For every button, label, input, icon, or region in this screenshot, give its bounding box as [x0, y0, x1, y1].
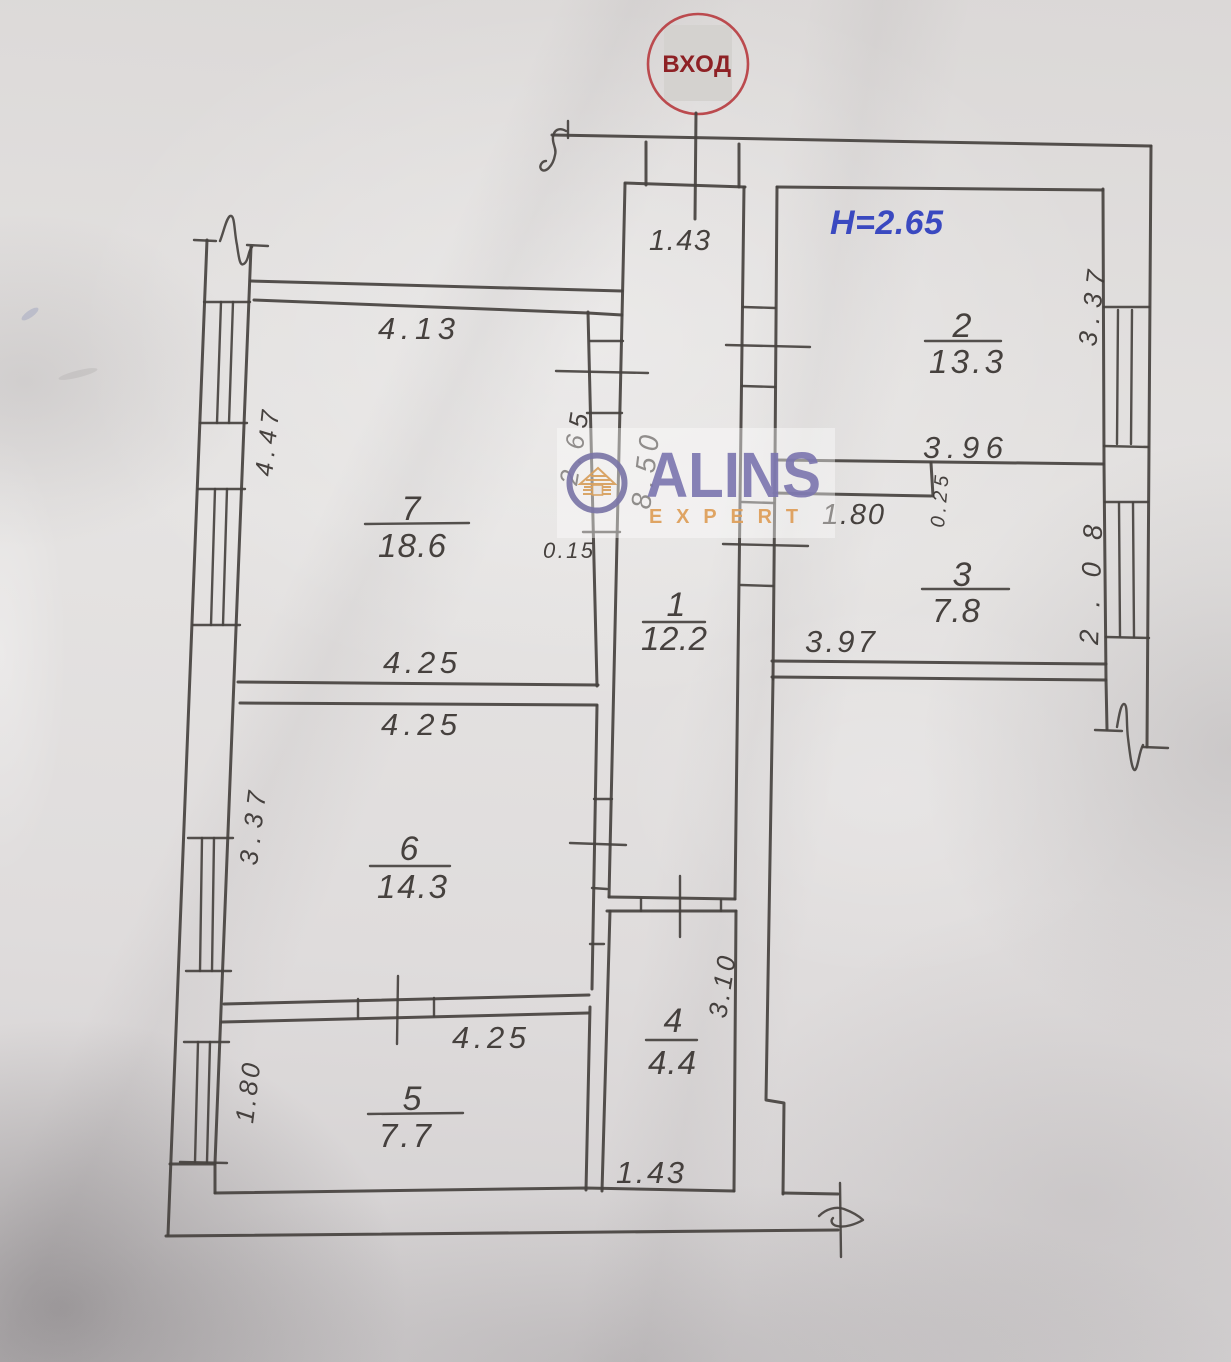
svg-text:0.15: 0.15: [543, 538, 594, 563]
svg-text:H=2.65: H=2.65: [830, 204, 944, 242]
svg-text:4.25: 4.25: [452, 1020, 527, 1055]
svg-text:4.47: 4.47: [250, 408, 285, 478]
svg-text:ALINS: ALINS: [646, 439, 821, 511]
svg-text:4.25: 4.25: [383, 645, 458, 680]
svg-text:6: 6: [400, 830, 419, 868]
svg-text:3.37: 3.37: [233, 788, 272, 867]
svg-text:4.25: 4.25: [381, 707, 458, 742]
svg-text:1.43: 1.43: [649, 225, 710, 257]
svg-text:EXPERT: EXPERT: [649, 506, 812, 528]
svg-text:3.97: 3.97: [805, 624, 877, 659]
svg-text:1.43: 1.43: [616, 1155, 684, 1190]
svg-text:7.7: 7.7: [379, 1117, 433, 1154]
svg-text:3.96: 3.96: [923, 430, 1004, 465]
svg-text:18.6: 18.6: [378, 527, 447, 564]
svg-text:7.8: 7.8: [932, 592, 981, 629]
svg-text:14.3: 14.3: [377, 868, 448, 905]
svg-text:13.3: 13.3: [929, 343, 1004, 380]
svg-text:12.2: 12.2: [641, 620, 707, 657]
svg-text:0.25: 0.25: [927, 474, 954, 529]
svg-text:2.08: 2.08: [1074, 524, 1108, 646]
svg-text:2: 2: [952, 307, 972, 345]
svg-text:1: 1: [667, 586, 686, 624]
svg-text:1.80: 1.80: [229, 1061, 266, 1125]
svg-text:ВХОД: ВХОД: [662, 51, 731, 78]
svg-text:3.37: 3.37: [1072, 267, 1111, 348]
svg-text:4: 4: [664, 1002, 683, 1040]
svg-text:4.4: 4.4: [648, 1044, 696, 1081]
svg-text:4.13: 4.13: [378, 311, 455, 346]
